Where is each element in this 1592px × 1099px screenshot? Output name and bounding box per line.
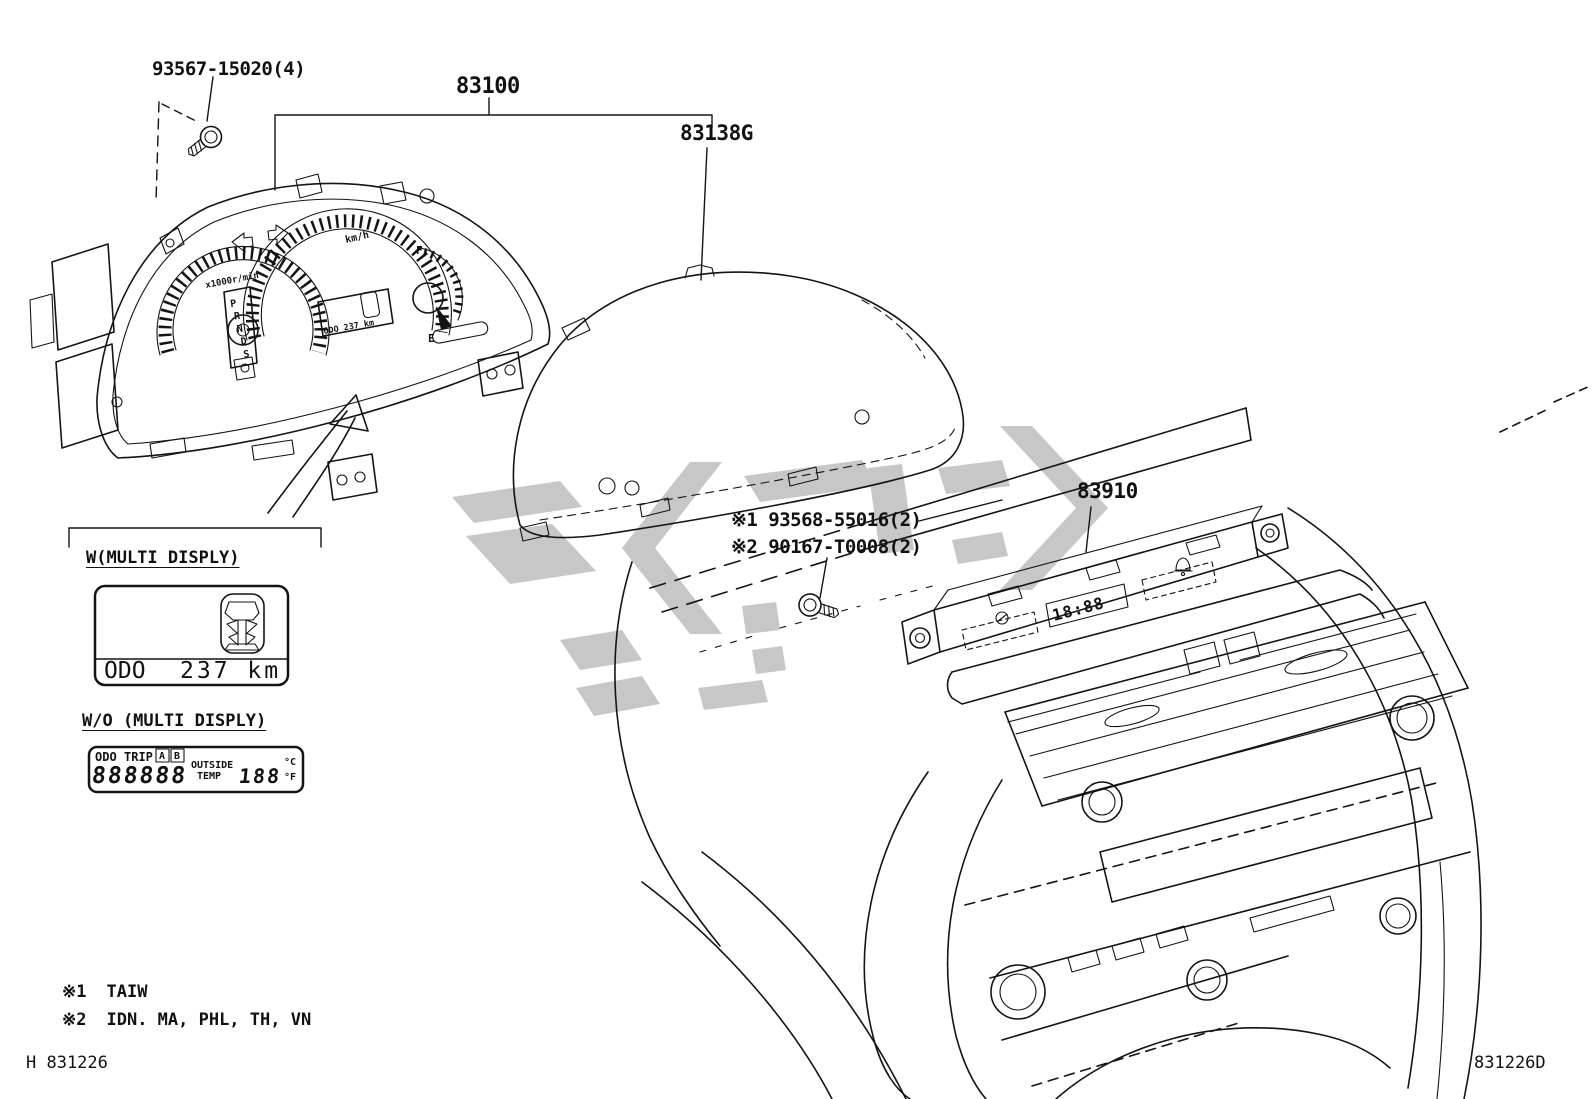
footnote-1: ※1TAIW xyxy=(62,982,147,1002)
audio-display-panel xyxy=(1100,768,1432,902)
part-label-screw: 93567-15020(4) xyxy=(152,58,305,80)
page-code-left: H 831226 xyxy=(26,1053,108,1073)
part-label-center-display: 83910 xyxy=(1077,479,1138,503)
center-display-unit: 18:88 xyxy=(902,506,1288,664)
gear-p-label: P xyxy=(230,298,238,310)
gear-n-label: N xyxy=(236,324,244,336)
legend-odo-label: ODO xyxy=(104,658,146,684)
lcd-temp-label: TEMP xyxy=(197,771,221,782)
speedometer-dial: km/h ODO 237 km xyxy=(243,209,451,340)
part-label-note2: ※2 90167-T0008(2) xyxy=(731,536,921,558)
bell-icon xyxy=(1174,558,1192,576)
fuel-full-label: F xyxy=(416,244,423,257)
part-label-meter-glass: 83138G xyxy=(680,121,753,145)
lcd-odometer-digits: 888888 xyxy=(91,763,189,789)
watermark-logo xyxy=(452,426,1108,716)
clip-screw-icon xyxy=(996,612,1008,624)
lcd-outside-label: OUTSIDE xyxy=(191,760,233,771)
footnote-2: ※2IDN. MA, PHL, TH, VN xyxy=(62,1010,311,1030)
footnote-2-text: IDN. MA, PHL, TH, VN xyxy=(106,1010,311,1030)
parts-diagram-page: x1000r/min km/h ODO 237 km P R N D S xyxy=(0,0,1592,1099)
lcd-trip-a-label: A xyxy=(159,751,165,762)
lcd-odo-label: ODO xyxy=(95,750,117,764)
door-open-indicator-icon xyxy=(221,594,264,653)
footnote-1-mark: ※1 xyxy=(62,982,86,1002)
gear-s-label: S xyxy=(243,349,251,361)
fuel-gauge: F E xyxy=(413,244,489,345)
legend-without-multi-title: W/O (MULTI DISPLY) xyxy=(82,711,266,731)
leader-lines xyxy=(69,77,1091,598)
screw-icon xyxy=(796,591,842,625)
lcd-fahrenheit-label: °F xyxy=(284,772,296,783)
footnote-2-mark: ※2 xyxy=(62,1010,86,1030)
speedo-unit-label: km/h xyxy=(344,230,370,246)
lcd-temp-digits: 188 xyxy=(238,764,283,788)
legend-with-multi-title: W(MULTI DISPLY) xyxy=(86,548,240,568)
page-code-right: 831226D xyxy=(1474,1053,1546,1073)
footnote-1-text: TAIW xyxy=(106,982,147,1002)
lcd-trip-label: TRIP xyxy=(124,750,153,764)
lcd-trip-b-label: B xyxy=(174,751,180,762)
gear-r-label: R xyxy=(233,311,241,323)
part-label-note1: ※1 93568-55016(2) xyxy=(731,509,921,531)
legend-odo-value: 237 km xyxy=(180,658,281,684)
screw-icon xyxy=(182,122,225,162)
instrument-cluster-drawing: x1000r/min km/h ODO 237 km P R N D S xyxy=(30,174,550,500)
radio-knob-icon xyxy=(991,696,1434,1019)
lcd-celsius-label: °C xyxy=(284,757,296,768)
part-label-cluster: 83100 xyxy=(456,74,520,99)
door-open-indicator-icon xyxy=(360,291,380,318)
cluster-odometer-label: ODO 237 km xyxy=(323,318,375,337)
